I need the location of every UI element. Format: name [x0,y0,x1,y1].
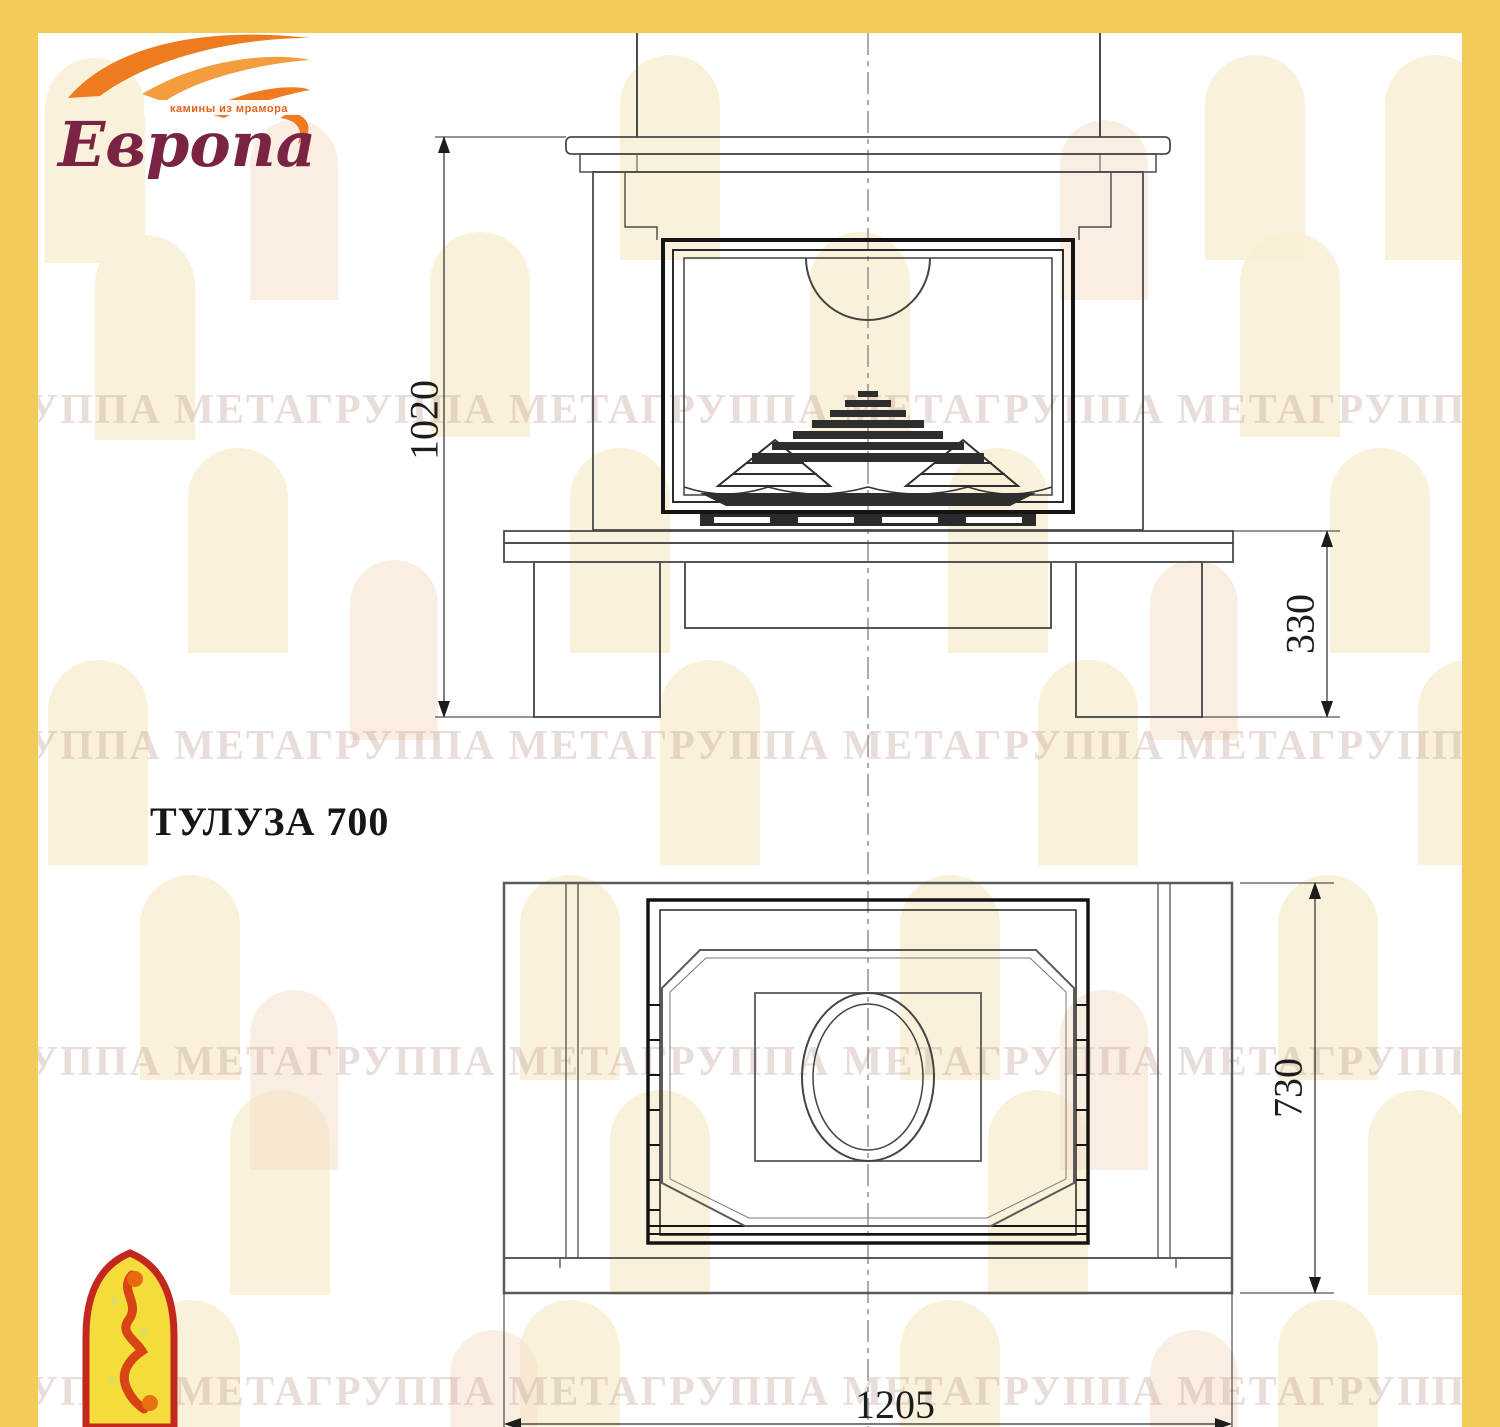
plan-left-convection-ticks [648,1005,660,1210]
fireplace-technical-drawing: 1020 330 730 [0,0,1500,1427]
arrow-down-icon [1321,701,1333,718]
base-left-leg [534,562,660,717]
dimension-depth-730: 730 [1240,882,1334,1294]
arrow-left-icon [504,1418,521,1427]
dim-label-330: 330 [1278,594,1323,654]
dimension-plinth-330: 330 [1202,530,1340,718]
arrow-right-icon [1215,1418,1232,1427]
dim-label-1020: 1020 [402,380,447,460]
arrow-down-icon [438,701,450,718]
dim-label-730: 730 [1266,1058,1311,1118]
log-set [684,391,1052,506]
base-right-leg [1076,562,1202,717]
arrow-up-icon [438,136,450,153]
arrow-down-icon [1309,1277,1321,1294]
right-jamb-step [1079,172,1111,240]
vent-grille [700,514,1036,526]
left-jamb-step [625,172,657,240]
dim-label-1205: 1205 [855,1382,935,1427]
firebird-emblem-icon [78,1241,182,1427]
plan-right-convection-ticks [1076,1005,1088,1210]
arrow-up-icon [1309,882,1321,899]
grate-front [700,493,1036,506]
arrow-up-icon [1321,530,1333,547]
dimension-height-1020: 1020 [402,136,567,718]
